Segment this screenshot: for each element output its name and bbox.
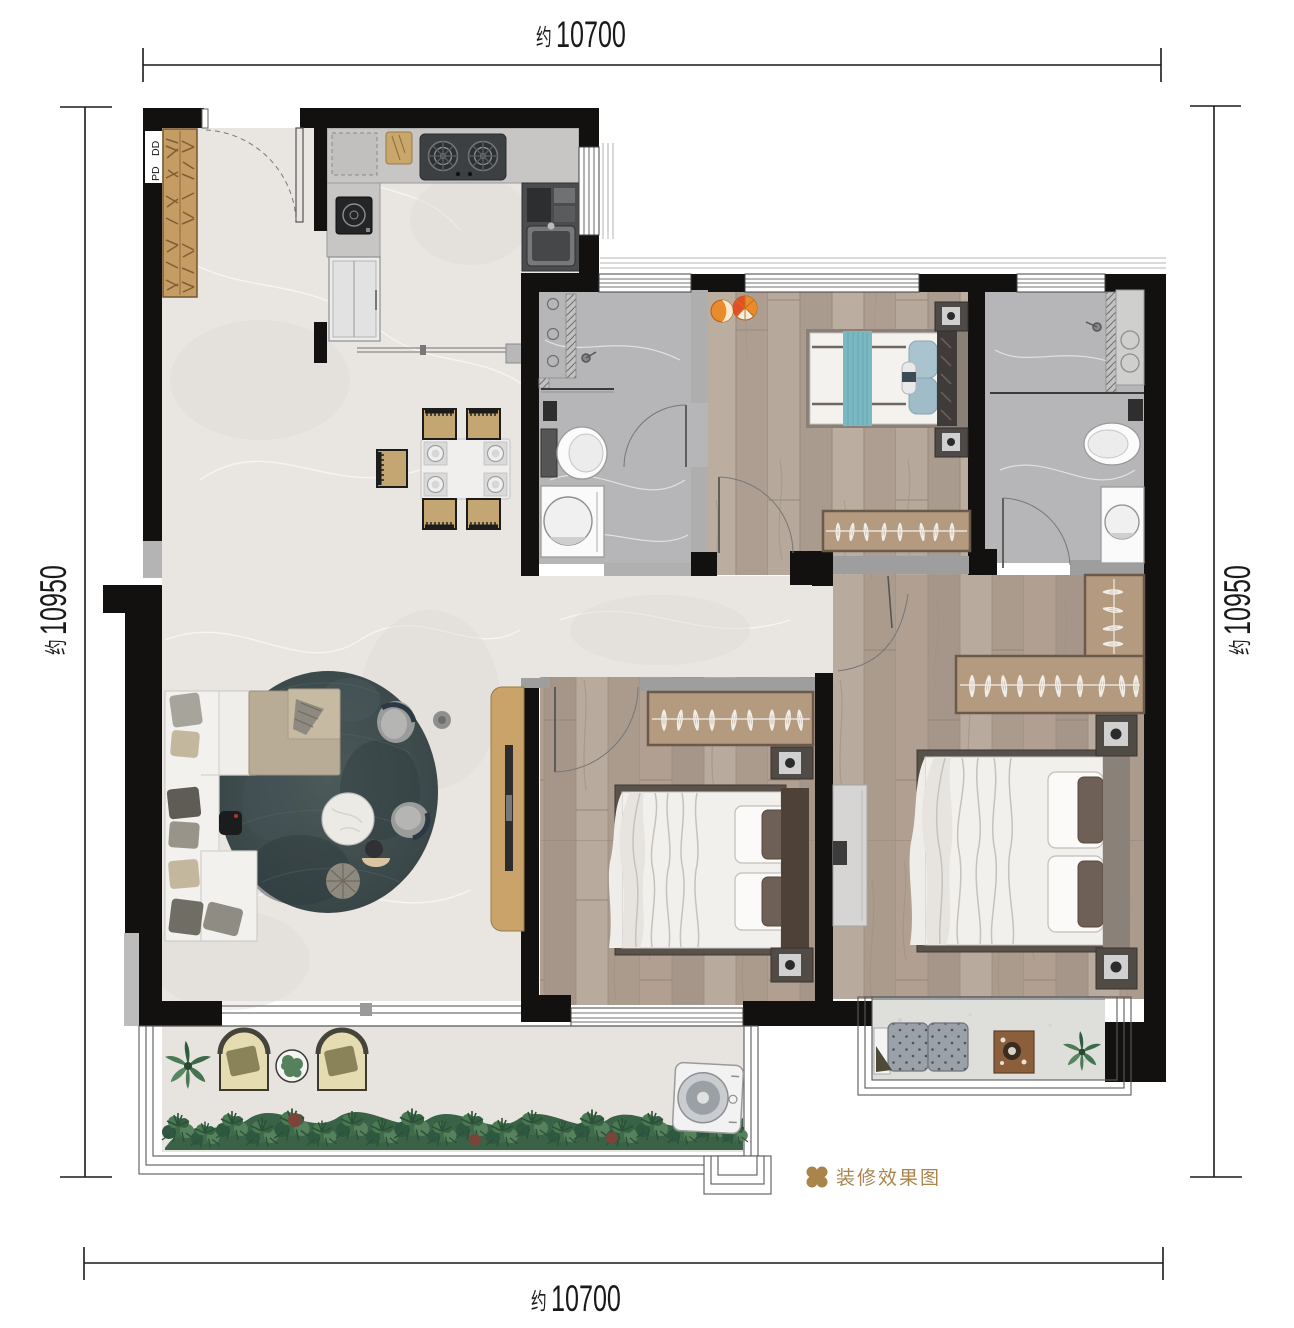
svg-text:装修效果图: 装修效果图: [836, 1167, 941, 1189]
svg-text:DD: DD: [150, 140, 162, 156]
svg-text:PD: PD: [150, 166, 162, 181]
